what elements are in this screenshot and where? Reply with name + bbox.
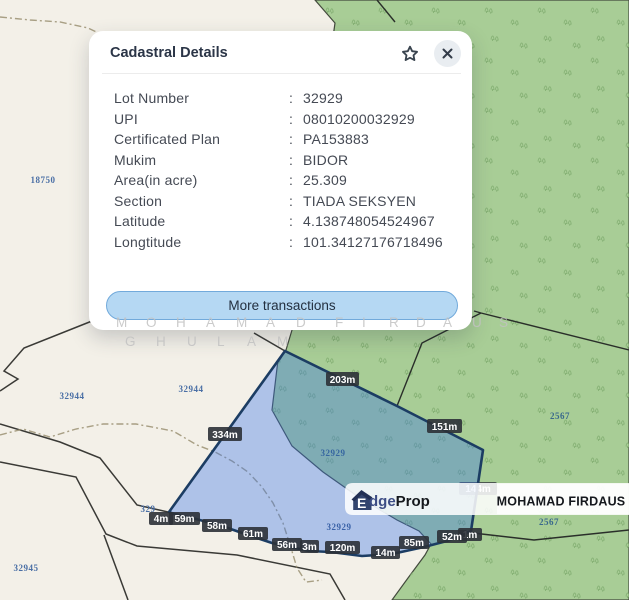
svg-text:203m: 203m bbox=[330, 375, 356, 386]
svg-text:E: E bbox=[357, 495, 366, 511]
svg-text:4m: 4m bbox=[154, 514, 169, 525]
svg-text:85m: 85m bbox=[404, 538, 424, 549]
svg-text:151m: 151m bbox=[432, 422, 458, 433]
svg-text:32929: 32929 bbox=[327, 522, 352, 532]
svg-text:2567: 2567 bbox=[539, 517, 559, 527]
svg-text:18750: 18750 bbox=[31, 175, 56, 185]
svg-text:14m: 14m bbox=[375, 548, 395, 559]
svg-text:32945: 32945 bbox=[14, 563, 39, 573]
svg-text:32944: 32944 bbox=[179, 384, 204, 394]
svg-text:3m: 3m bbox=[302, 542, 317, 553]
svg-text:32929: 32929 bbox=[321, 448, 346, 458]
svg-text:59m: 59m bbox=[174, 514, 194, 525]
svg-text:dgeProp: dgeProp bbox=[369, 493, 430, 510]
svg-text:120m: 120m bbox=[330, 543, 356, 554]
svg-text:58m: 58m bbox=[207, 521, 227, 532]
svg-text:2567: 2567 bbox=[550, 411, 570, 421]
svg-text:56m: 56m bbox=[277, 540, 297, 551]
svg-text:32944: 32944 bbox=[60, 391, 85, 401]
svg-text:61m: 61m bbox=[243, 529, 263, 540]
svg-text:MOHAMAD FIRDAUS: MOHAMAD FIRDAUS bbox=[497, 495, 626, 509]
svg-text:52m: 52m bbox=[442, 532, 462, 543]
svg-text:334m: 334m bbox=[212, 430, 238, 441]
